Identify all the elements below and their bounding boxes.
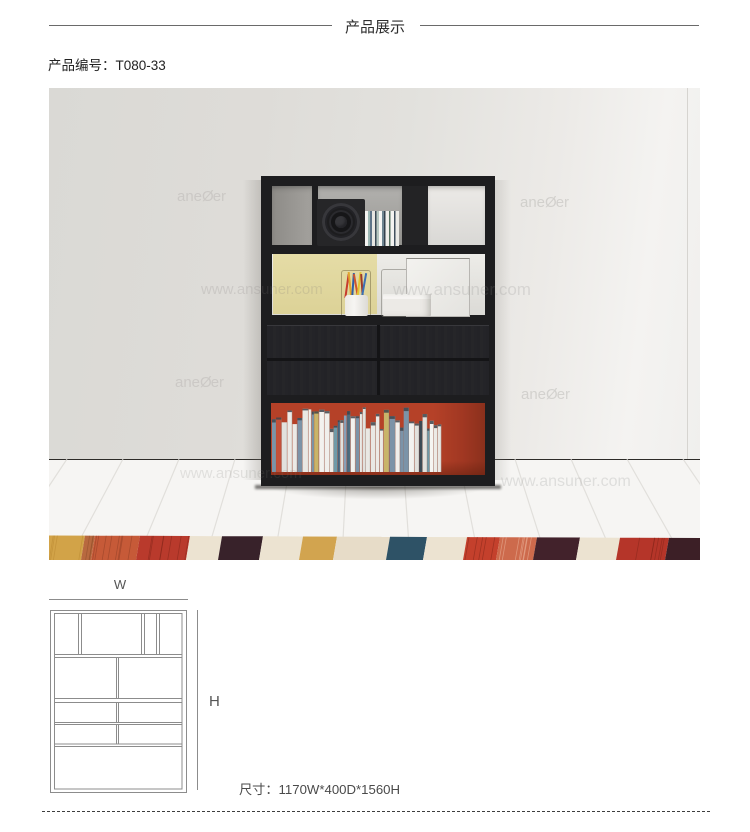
svg-text:W: W xyxy=(114,577,127,592)
svg-text:H: H xyxy=(209,693,220,710)
